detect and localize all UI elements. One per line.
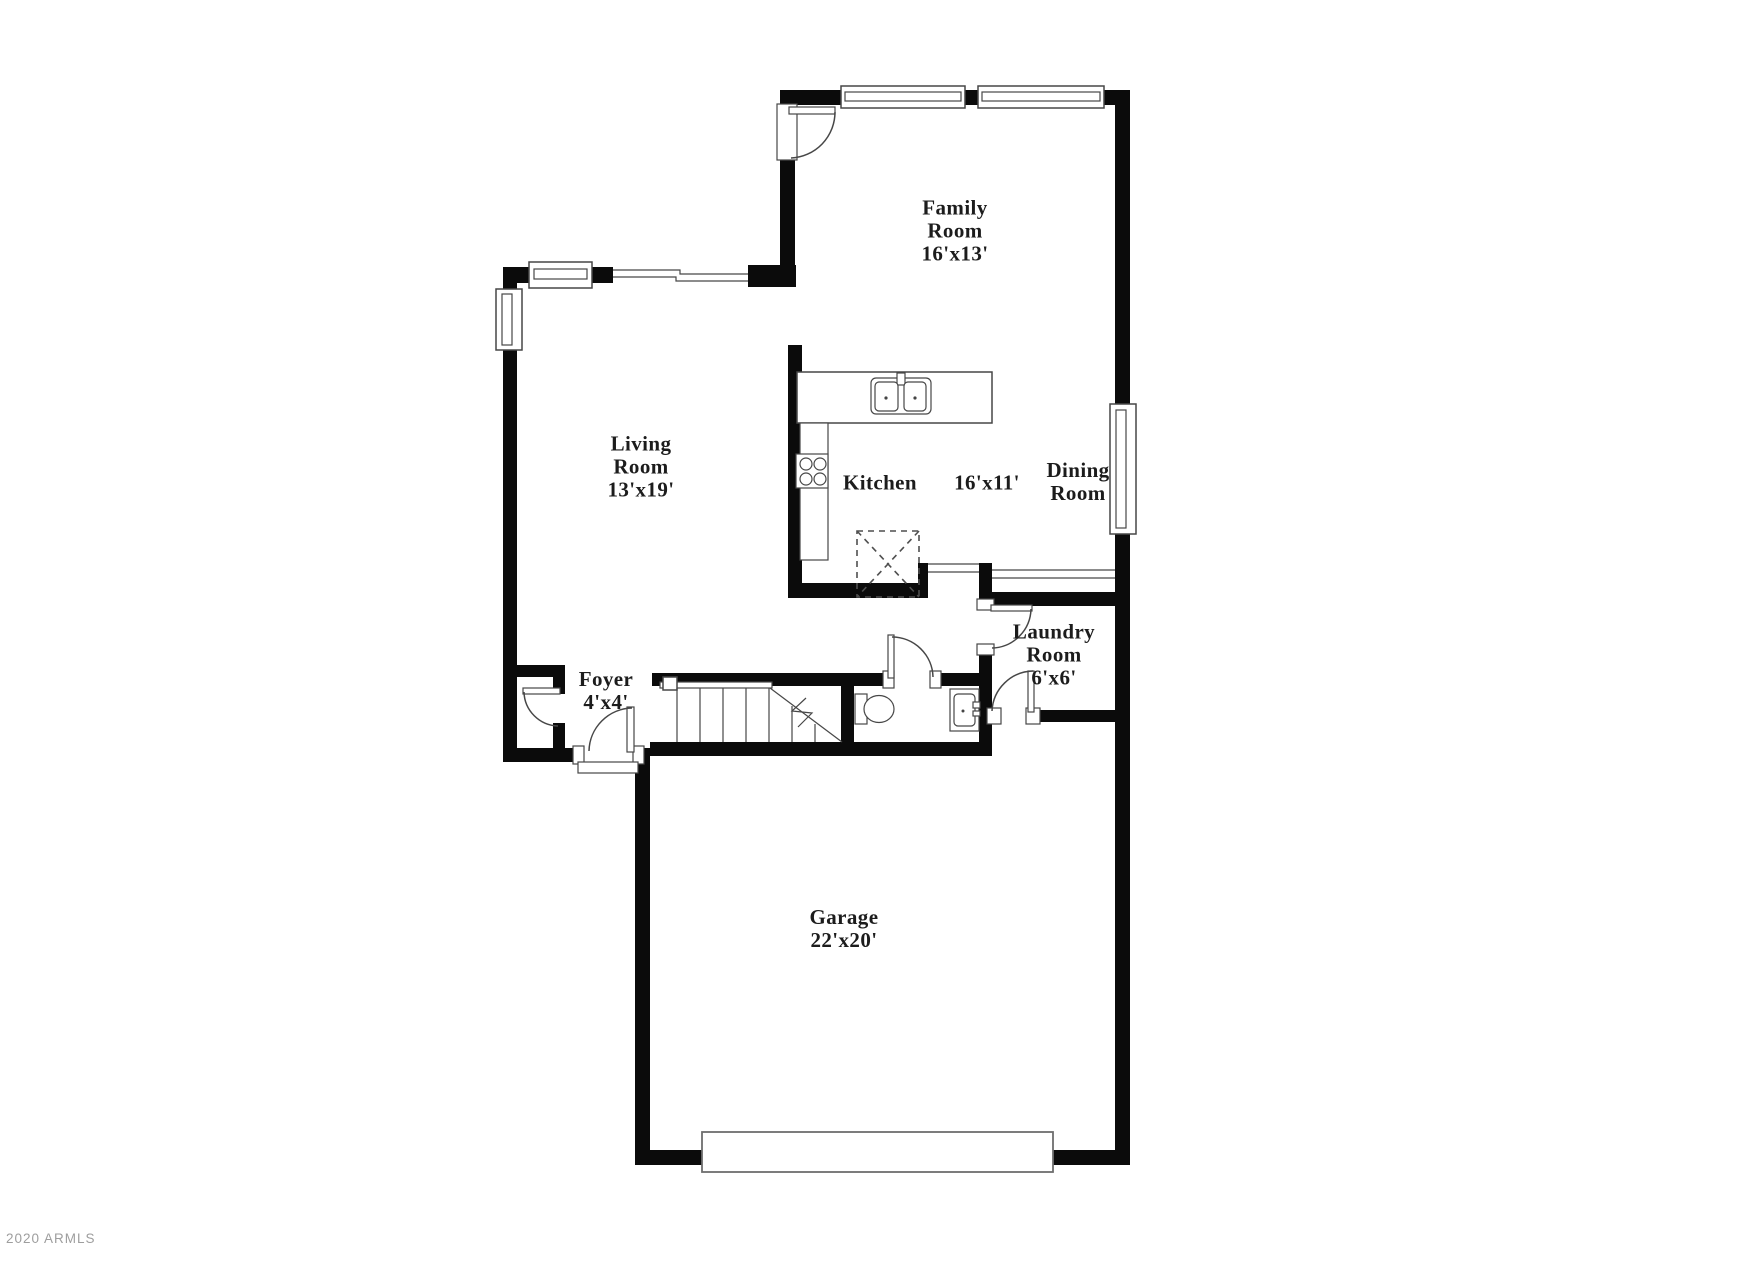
room-label-kitchen: Kitchen (843, 472, 917, 495)
room-name: Garage (784, 906, 904, 929)
wall-jut-block (748, 265, 796, 287)
room-label-laundry: Laundry Room 6'x6' (999, 621, 1109, 690)
room-label-living: Living Room 13'x19' (594, 433, 689, 502)
patio-door (777, 104, 835, 160)
wall-stairs-bottom (650, 742, 992, 756)
room-name: Kitchen (843, 472, 917, 495)
toilet (855, 694, 894, 724)
wall-right-upper (1115, 90, 1130, 412)
bathroom-sink (950, 689, 980, 731)
watermark: 2020 ARMLS (6, 1231, 96, 1246)
wall-garage-left (635, 760, 650, 1165)
room-label-foyer: Foyer 4'x4' (561, 668, 651, 714)
room-dims: 13'x19' (594, 479, 689, 502)
garage-door (702, 1132, 1053, 1172)
room-label-garage: Garage 22'x20' (784, 906, 904, 952)
room-dims: 6'x6' (999, 667, 1109, 690)
opening-kitchen-hall (928, 564, 979, 572)
floor-plan-drawing (0, 0, 1760, 1280)
stair-treads (677, 688, 769, 742)
stairs (660, 677, 842, 742)
wall-closet-top (503, 665, 565, 677)
room-name: Dining Room (1028, 459, 1128, 505)
opening-living-family-bottom (613, 277, 748, 281)
room-label-family: Family Room 16'x13' (900, 197, 1010, 266)
room-dims: 4'x4' (561, 691, 651, 714)
stair-newel (663, 677, 677, 690)
bathroom-fixtures (855, 689, 980, 731)
wall-right-lower (1115, 528, 1130, 1165)
room-dims: 22'x20' (784, 929, 904, 952)
window-living-left (496, 289, 522, 350)
wall-laundry-bottom (1038, 710, 1130, 722)
floor-plan: Family Room 16'x13' Living Room 13'x19' … (0, 0, 1760, 1280)
window-family-1 (841, 86, 965, 108)
opening-dining-south (992, 570, 1115, 578)
wall-laundry-left-lower (979, 649, 992, 755)
entry-stoop (578, 762, 638, 773)
wall-top-family-a (780, 90, 843, 105)
wall-closet-stub-bottom (553, 723, 565, 748)
stove (796, 454, 828, 488)
room-name: Foyer (561, 668, 651, 691)
window-family-2 (978, 86, 1104, 108)
wall-bath-top-a (843, 673, 886, 686)
bath-door (883, 635, 941, 688)
wall-foyer-bottom (503, 748, 583, 762)
room-dims: 16'x11' (954, 472, 1020, 495)
room-dims: 16'x13' (900, 243, 1010, 266)
stair-break-zigzag (792, 698, 812, 727)
window-living-top (529, 262, 592, 288)
room-name: Living Room (594, 433, 689, 479)
wall-laundry-top (992, 592, 1130, 606)
stair-break-diagonal (770, 688, 842, 742)
closet-door (523, 688, 560, 726)
wall-bath-top-b (940, 673, 979, 686)
room-label-dining: Dining Room (1028, 459, 1128, 505)
wall-living-left-b (503, 348, 517, 762)
kitchen-counter (800, 423, 828, 560)
opening-lines (613, 270, 1115, 578)
front-door (573, 707, 644, 773)
room-label-kitchen-dims: 16'x11' (954, 472, 1020, 495)
kitchen-sink (871, 373, 931, 414)
opening-living-family-top (613, 270, 748, 274)
room-name: Family Room (900, 197, 1010, 243)
room-name: Laundry Room (999, 621, 1109, 667)
wall-family-left (780, 158, 795, 267)
